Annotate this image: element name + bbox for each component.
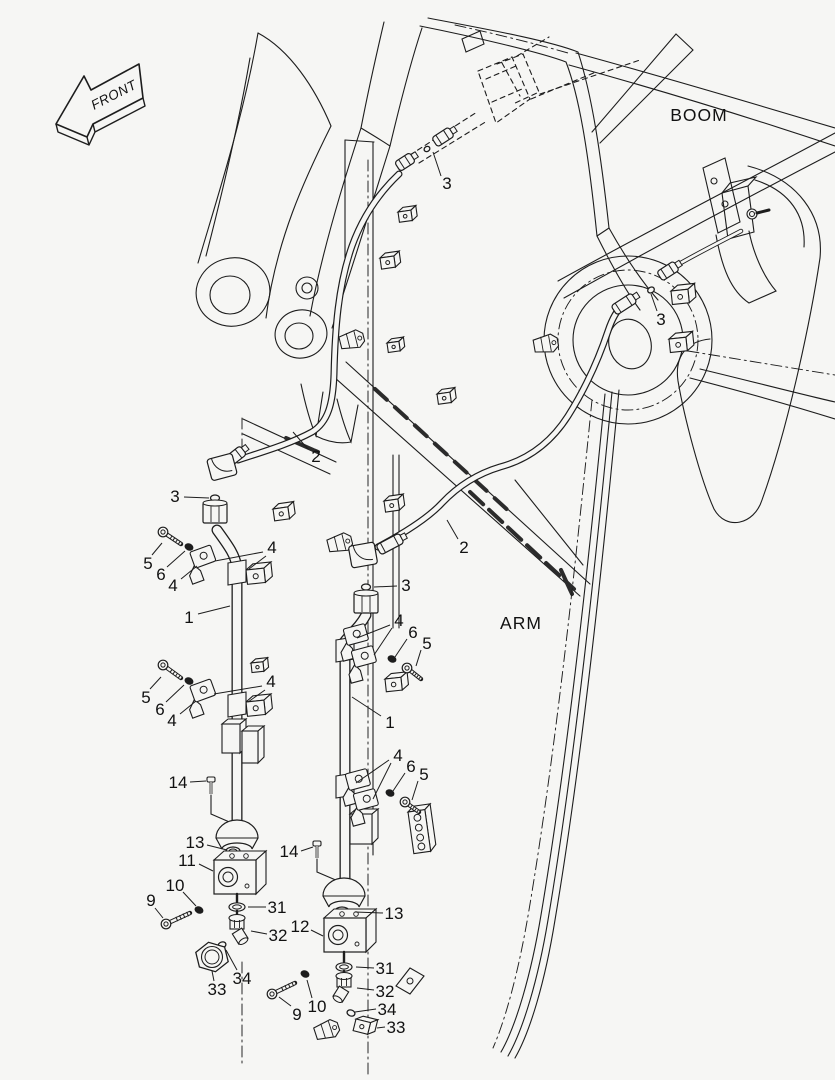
fittings-and-hardware	[158, 124, 696, 1042]
boom-label: BOOM	[670, 105, 727, 125]
callout-4: 4	[266, 672, 275, 691]
callout-2: 2	[459, 538, 468, 557]
weld-boss-cube	[384, 672, 408, 692]
leader-line	[152, 543, 162, 555]
weld-boss-cube	[245, 562, 272, 584]
leader-line	[251, 931, 267, 934]
arm-label: ARM	[500, 613, 542, 633]
hex-bolt	[158, 660, 181, 678]
pipe-clamp-bracket	[182, 679, 221, 718]
hose-ferrule-fitting	[657, 258, 684, 281]
hex-nut	[196, 942, 228, 971]
socket-screw	[313, 841, 321, 858]
callout-32: 32	[376, 982, 395, 1001]
pipe-clamp-band	[228, 560, 246, 585]
weld-boss-cube	[668, 331, 694, 352]
leader-line	[198, 606, 230, 614]
valve-block	[324, 909, 376, 952]
hoses	[238, 174, 741, 547]
hex-bolt	[158, 527, 181, 544]
clip-bracket	[313, 1018, 341, 1043]
weld-boss-cube	[397, 206, 417, 223]
callout-5: 5	[141, 688, 150, 707]
elbow-adapter-fitting	[332, 973, 352, 1005]
leader-line	[412, 781, 418, 800]
callout-4: 4	[393, 746, 402, 765]
hose-ferrule-fitting	[611, 290, 641, 315]
leader-line	[184, 497, 209, 498]
leader-line	[651, 294, 657, 311]
leader-line	[150, 677, 161, 689]
callout-4: 4	[394, 611, 403, 630]
pipe-clamp-band	[228, 692, 246, 717]
leader-line	[355, 1009, 376, 1012]
leader-line	[166, 685, 184, 702]
callout-14: 14	[169, 773, 188, 792]
callout-5: 5	[422, 634, 431, 653]
weld-boss-cube	[670, 283, 696, 304]
weld-boss-cube	[383, 494, 405, 512]
callout-6: 6	[155, 700, 164, 719]
clip-bracket	[533, 333, 560, 355]
leader-line	[307, 980, 312, 998]
leader-line	[279, 997, 291, 1006]
callout-6: 6	[156, 565, 165, 584]
socket-screw	[207, 777, 215, 794]
callout-13: 13	[186, 833, 205, 852]
callout-12: 12	[291, 917, 310, 936]
callout-11: 11	[178, 851, 196, 870]
callout-3: 3	[170, 487, 179, 506]
pipe-flange-dome	[216, 820, 258, 849]
callout-33: 33	[208, 980, 227, 999]
hex-union-fitting	[203, 500, 227, 523]
callout-5: 5	[143, 554, 152, 573]
callout-31: 31	[268, 898, 287, 917]
leader-line	[395, 639, 407, 657]
o-ring	[423, 145, 431, 152]
hex-bolt	[267, 982, 295, 999]
callout-3: 3	[656, 310, 665, 329]
callout-4: 4	[267, 538, 276, 557]
callout-32: 32	[269, 926, 288, 945]
hex-bolt	[161, 912, 190, 929]
callout-34: 34	[233, 969, 252, 988]
callout-9: 9	[146, 891, 155, 910]
leader-line	[311, 930, 323, 936]
pipe-clamp-bracket	[182, 545, 221, 584]
mount-plate	[396, 968, 424, 994]
leader-line	[447, 520, 458, 539]
callout-13: 13	[385, 904, 404, 923]
leader-line	[183, 892, 196, 906]
weld-boss-cube	[272, 502, 295, 521]
leader-line	[356, 967, 374, 968]
spring-washer	[193, 905, 204, 915]
callout-4: 4	[168, 576, 177, 595]
callout-10: 10	[308, 997, 327, 1016]
manifold-block	[407, 804, 436, 854]
callout-4: 4	[167, 711, 176, 730]
o-ring	[362, 584, 371, 590]
hose-ferrule-fitting	[376, 531, 409, 555]
callout-6: 6	[406, 757, 415, 776]
pipe-flange-dome	[323, 878, 365, 907]
parts-diagram-page: FRONT BOOMARM332356441234651564446514131…	[0, 0, 835, 1080]
leader-line	[199, 864, 213, 871]
leader-line	[352, 697, 381, 716]
callout-2: 2	[311, 447, 320, 466]
weld-boss-cube	[386, 337, 405, 352]
spring-washer	[299, 969, 310, 979]
weld-boss-cube	[251, 658, 269, 673]
callout-5: 5	[419, 765, 428, 784]
leader-line	[167, 551, 185, 567]
leader-line	[155, 908, 163, 918]
o-ring	[346, 1009, 356, 1017]
front-arrow: FRONT	[56, 64, 145, 145]
hex-union-fitting	[354, 590, 378, 613]
elbow-fitting	[348, 542, 377, 568]
weld-boss-cube	[436, 388, 456, 405]
callout-14: 14	[280, 842, 299, 861]
leader-line	[374, 628, 392, 655]
leader-line	[377, 1027, 385, 1028]
elbow-adapter-fitting	[229, 915, 249, 947]
callout-33: 33	[387, 1018, 406, 1037]
valve-block	[214, 851, 266, 894]
boom-arm-piping-diagram: FRONT BOOMARM332356441234651564446514131…	[0, 0, 835, 1080]
weld-boss-cube	[353, 1015, 378, 1036]
leader-line	[357, 988, 374, 990]
weld-boss-cube	[379, 251, 401, 269]
hose-ferrule-fitting	[432, 124, 459, 147]
callout-3: 3	[442, 174, 451, 193]
leader-line	[416, 650, 421, 666]
callout-31: 31	[376, 959, 395, 978]
clip-bracket	[338, 328, 366, 351]
weld-boss-cube	[245, 694, 272, 716]
hose-ferrule-fitting	[394, 150, 419, 172]
callout-10: 10	[166, 876, 185, 895]
leader-line	[190, 781, 206, 782]
callout-1: 1	[385, 713, 394, 732]
callout-1: 1	[184, 608, 193, 627]
spacer-block	[242, 726, 264, 763]
elbow-fitting	[207, 453, 238, 481]
leader-line	[433, 152, 441, 176]
callout-6: 6	[408, 623, 417, 642]
leader-line	[393, 773, 405, 791]
callout-9: 9	[292, 1005, 301, 1024]
callout-3: 3	[401, 576, 410, 595]
callout-34: 34	[378, 1000, 397, 1019]
leader-line	[301, 847, 313, 851]
